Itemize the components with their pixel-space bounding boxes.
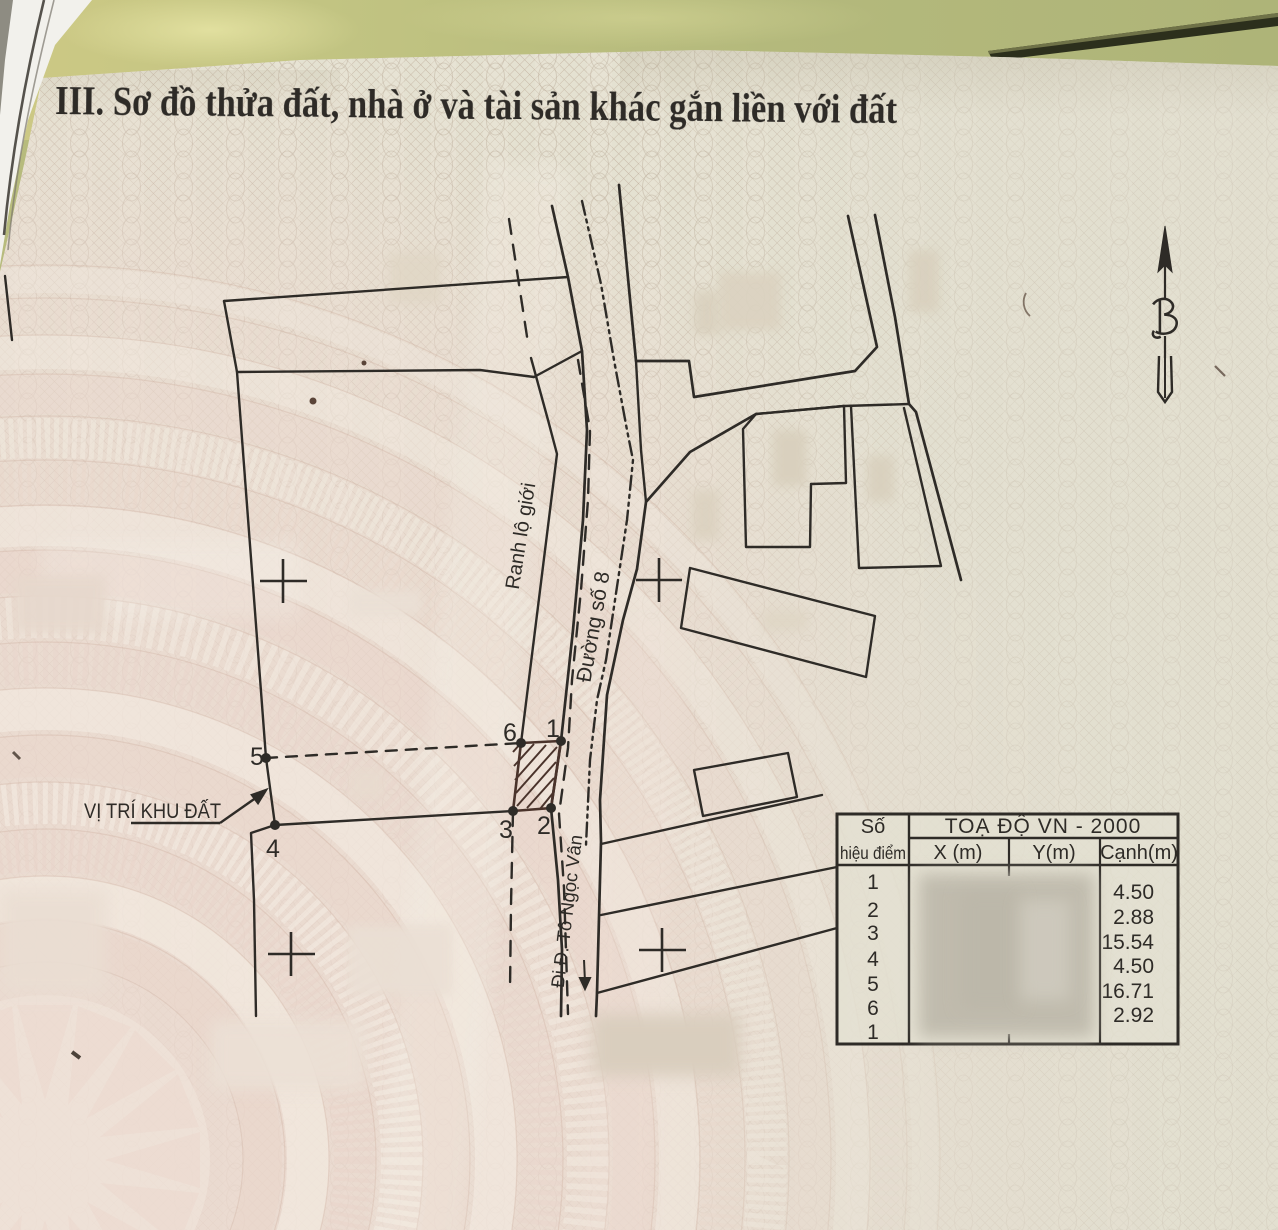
svg-text:III. Sơ đồ thửa đất, nhà ở và: III. Sơ đồ thửa đất, nhà ở và tài sản kh…	[55, 77, 898, 132]
svg-text:2.88: 2.88	[1113, 906, 1154, 929]
svg-text:4.50: 4.50	[1113, 955, 1154, 978]
svg-text:3: 3	[499, 816, 513, 844]
svg-text:2.92: 2.92	[1113, 1004, 1154, 1027]
svg-text:15.54: 15.54	[1101, 931, 1154, 954]
svg-text:5: 5	[867, 973, 879, 996]
svg-text:VỊ TRÍ KHU ĐẤT: VỊ TRÍ KHU ĐẤT	[84, 798, 221, 823]
svg-text:1: 1	[546, 715, 560, 743]
svg-text:2: 2	[867, 899, 879, 922]
svg-text:6: 6	[867, 997, 879, 1020]
svg-text:1: 1	[867, 1021, 879, 1044]
svg-text:Cạnh(m): Cạnh(m)	[1100, 842, 1178, 864]
svg-text:Y(m): Y(m)	[1032, 842, 1075, 864]
svg-text:6: 6	[503, 719, 517, 747]
svg-text:TOẠ ĐỘ VN - 2000: TOẠ ĐỘ VN - 2000	[945, 815, 1142, 838]
svg-text:3: 3	[867, 922, 879, 945]
svg-text:1: 1	[867, 871, 879, 894]
svg-text:4: 4	[266, 835, 280, 863]
svg-text:4.50: 4.50	[1113, 881, 1154, 904]
svg-text:5: 5	[250, 743, 264, 771]
svg-text:X (m): X (m)	[934, 842, 983, 864]
svg-text:2: 2	[537, 812, 551, 840]
svg-text:Số: Số	[861, 816, 885, 838]
svg-text:hiệu điểm: hiệu điểm	[840, 843, 906, 863]
svg-text:16.71: 16.71	[1101, 980, 1154, 1003]
svg-text:4: 4	[867, 948, 879, 971]
